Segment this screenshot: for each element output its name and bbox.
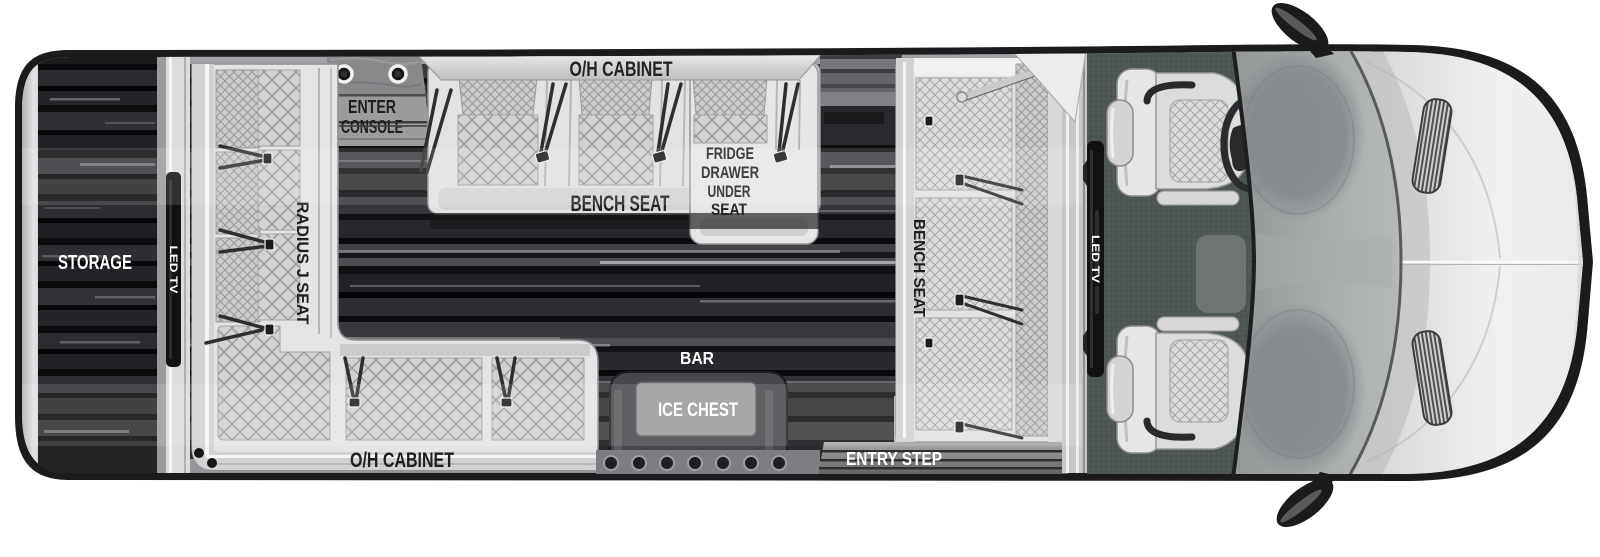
svg-text:O/H CABINET: O/H CABINET bbox=[570, 58, 673, 81]
svg-text:BAR: BAR bbox=[680, 348, 714, 368]
svg-text:BENCH SEAT: BENCH SEAT bbox=[910, 219, 927, 317]
svg-text:LED TV: LED TV bbox=[167, 246, 179, 295]
svg-text:RADIUS J SEAT: RADIUS J SEAT bbox=[293, 202, 311, 325]
svg-text:O/H CABINET: O/H CABINET bbox=[350, 449, 454, 472]
svg-text:STORAGE: STORAGE bbox=[58, 252, 132, 274]
svg-text:ENTER: ENTER bbox=[348, 97, 396, 117]
svg-text:LED TV: LED TV bbox=[1089, 235, 1101, 284]
svg-text:ENTRY STEP: ENTRY STEP bbox=[846, 448, 942, 469]
